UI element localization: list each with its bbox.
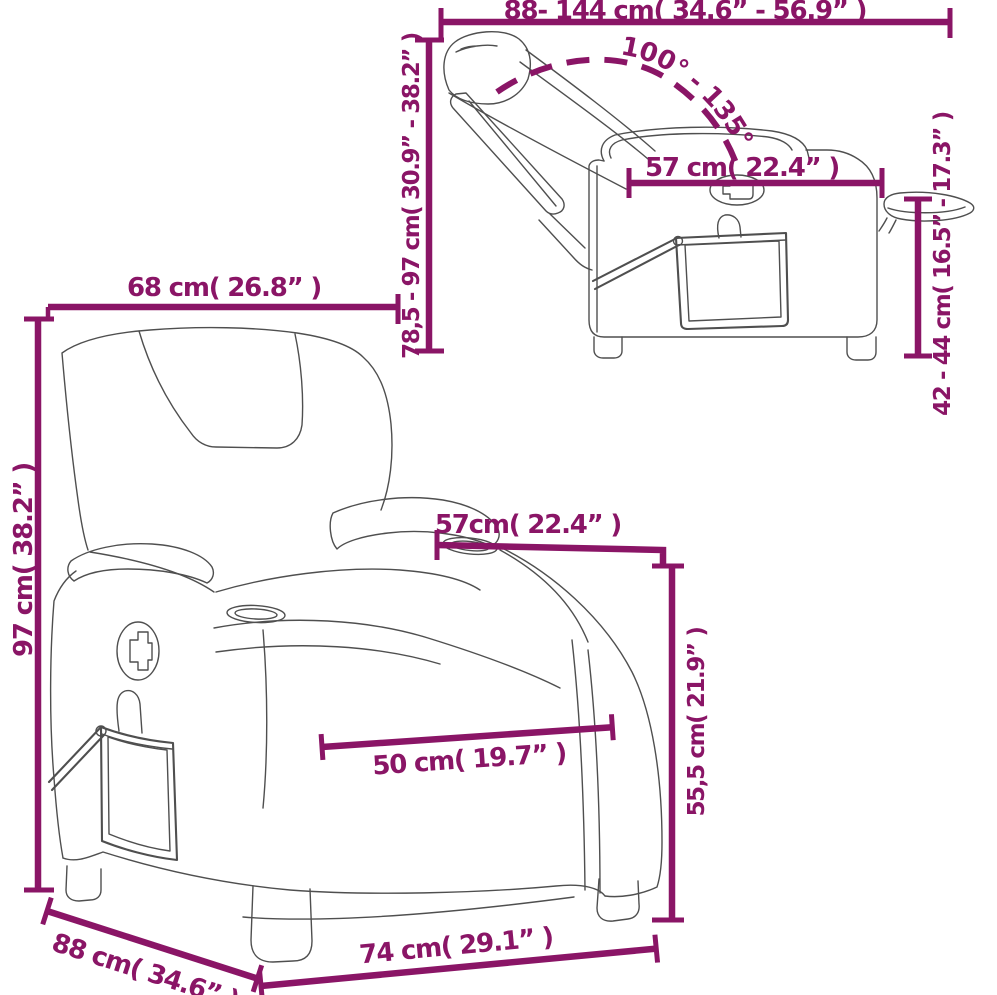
- dimension-diagram: 88- 144 cm( 34.6” - 56.9” ) 100° - 135° …: [0, 0, 997, 995]
- front-right-arm-panel: [498, 546, 662, 897]
- front-right-arm-band: [500, 550, 600, 893]
- dimension-end-cap: [652, 566, 684, 920]
- front-left-cupholder-inner: [235, 608, 277, 620]
- side-front-foot: [594, 337, 622, 358]
- diagram-canvas: 88- 144 cm( 34.6” - 56.9” ) 100° - 135° …: [0, 0, 997, 995]
- front-seat-top: [216, 569, 480, 592]
- dimension-front-depth: 88 cm( 34.6” ): [34, 898, 262, 995]
- front-pocket-strap: [49, 727, 104, 790]
- side-pocket-strap: [593, 238, 679, 289]
- front-seat-crease-left: [90, 552, 214, 592]
- side-pocket: [676, 233, 788, 329]
- dimension-front-base-width: 74 cm( 29.1” ): [258, 913, 658, 995]
- dimension-side-height-range: 78,5 - 97 cm( 30.9” - 38.2” ): [399, 33, 444, 359]
- dim-label-front-seat-width: 50 cm( 19.7” ): [371, 738, 567, 781]
- front-left-arm-panel: [51, 571, 267, 858]
- dimension-side-extended-width: 88- 144 cm( 34.6” - 56.9” ): [441, 0, 950, 40]
- dimension-front-back-width: 57cm( 22.4” ): [435, 510, 663, 566]
- side-footrest-linkage: [539, 214, 592, 270]
- dimension-front-overall-width: 68 cm( 26.8” ): [48, 273, 398, 324]
- side-backrest-edge-inner: [520, 62, 648, 159]
- front-release-handle-latch: [130, 632, 152, 670]
- dimension-front-seat-width: 50 cm( 19.7” ): [321, 714, 615, 785]
- dimension-front-overall-height: 97 cm( 38.2” ): [9, 319, 54, 890]
- front-footrest-crease: [216, 646, 440, 664]
- dimension-recline-angle: 100° - 135°: [497, 31, 758, 163]
- front-center-foot: [251, 886, 312, 962]
- front-pocket: [101, 727, 177, 860]
- dim-label-side-table-height: 42 - 44 cm( 16.5” - 17.3” ): [930, 112, 956, 416]
- dimension-side-table-height: 42 - 44 cm( 16.5” - 17.3” ): [904, 112, 956, 416]
- front-pocket-inner: [108, 737, 170, 851]
- dim-label-side-extended-width: 88- 144 cm( 34.6” - 56.9” ): [504, 0, 867, 26]
- side-footrest-inner: [469, 101, 556, 206]
- front-headrest-panel: [139, 331, 303, 448]
- side-rear-foot: [847, 337, 876, 360]
- side-headrest-stitch: [456, 45, 497, 52]
- front-backrest: [62, 328, 392, 550]
- front-left-arm-pillow: [68, 544, 214, 583]
- front-base-frame: [63, 852, 605, 896]
- side-backrest-edge-lower: [449, 93, 626, 189]
- front-view-chair-outline: [49, 328, 662, 962]
- side-pocket-hem: [677, 240, 786, 245]
- dim-label-front-arm-height: 55,5 cm( 21.9” ): [684, 628, 710, 817]
- dimension-line: [437, 545, 663, 566]
- front-remote-flap: [117, 691, 142, 733]
- dim-label-side-height-range: 78,5 - 97 cm( 30.9” - 38.2” ): [399, 33, 425, 359]
- side-pocket-inner: [685, 241, 781, 321]
- dim-label-side-back-width: 57 cm( 22.4” ): [645, 153, 839, 183]
- front-base-shadow: [243, 897, 574, 919]
- side-tray-stem: [879, 218, 896, 233]
- dim-label-front-overall-width: 68 cm( 26.8” ): [127, 273, 321, 303]
- dim-label-front-back-width: 57cm( 22.4” ): [435, 510, 621, 540]
- front-right-foot: [597, 879, 639, 921]
- front-left-foot: [66, 866, 101, 901]
- dim-label-front-overall-height: 97 cm( 38.2” ): [9, 463, 39, 657]
- dimension-line: [322, 727, 612, 747]
- side-headrest: [444, 32, 530, 104]
- dimension-side-back-width: 57 cm( 22.4” ): [629, 153, 882, 198]
